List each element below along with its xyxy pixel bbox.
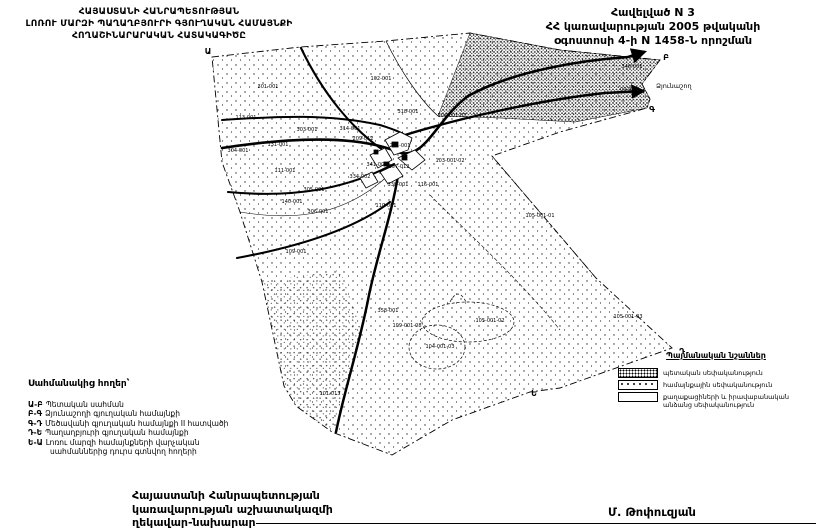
parcel-label: 301-001 [258, 84, 279, 90]
parcel-label: 346-001 [622, 64, 643, 70]
signature-name: Մ. Թոփուզյան [608, 505, 696, 519]
title-line: ՀԱՅԱՍՏԱՆԻ ՀԱՆՐԱՊԵՏՈՒԹՅԱՆ [4, 6, 314, 18]
appendix-line: օգոստոսի 4-ի N 1458-Ն որոշման [492, 34, 814, 48]
parcel-label: 105-001-03 [613, 314, 642, 320]
signatory-line: կառավարության աշխատակազմի [132, 503, 432, 517]
bottom-rule [256, 523, 816, 524]
boundary-point-letter: Գ [649, 105, 655, 114]
boundary-legend-item: Գ-ԴՄեծավանի գյուղական համայնքի II հատված… [28, 419, 288, 429]
parcel-label: 140-001 [282, 199, 303, 205]
parcel-label: 305-001 [304, 187, 325, 193]
boundary-legend-item: Ա-ԲՊետական սահման [28, 400, 288, 410]
appendix-line: ՀՀ կառավարության 2005 թվականի [492, 20, 814, 34]
ownership-legend-title: Պայմանական նշաններ [618, 352, 814, 360]
parcel-label: 131-001 [268, 142, 289, 148]
parcel-label: 105-001-01 [525, 213, 554, 219]
parcel-label: 303-001 [297, 127, 318, 133]
parcel-label: 116-001 [418, 182, 439, 188]
boundary-legend-title: Սահմանակից հողեր՝ [28, 380, 288, 390]
parcel-label: 334-002 [350, 174, 371, 180]
ownership-legend: Պայմանական նշաններ պետական սեփականությու… [618, 352, 814, 411]
boundary-legend-item: Դ-ԵՊաղաղբյուրի գյուղական համայնքի [28, 428, 288, 438]
parcel-label: 306-001 [308, 209, 329, 215]
private-ownership-swatch [618, 392, 658, 402]
boundary-point-letter: Ե [531, 389, 537, 398]
document-page: ԱԲԳԴԵ 301-001102-001113-001303-001131-00… [0, 0, 818, 531]
document-title: ՀԱՅԱՍՏԱՆԻ ՀԱՆՐԱՊԵՏՈՒԹՅԱՆ ԼՈՌՈՒ ՄԱՐԶԻ ՊԱՂ… [4, 6, 314, 42]
parcel-label: 304-001 [228, 148, 249, 154]
appendix-reference: Հավելված N 3 ՀՀ կառավարության 2005 թվակա… [492, 6, 814, 48]
parcel-label: 657-012 [389, 164, 410, 170]
community-ownership-swatch [618, 380, 658, 390]
boundary-legend: Սահմանակից հողեր՝ Ա-ԲՊետական սահման Բ-ԳՁ… [28, 380, 288, 457]
parcel-label: 358-001 [378, 308, 399, 314]
boundary-legend-item: Ե-ԱԼոռու մարզի համայնքների վարչական [28, 438, 288, 448]
parcel-label: 113-001 [236, 115, 257, 121]
parcel-label: 314-001 [340, 126, 361, 132]
title-line: ԼՈՌՈՒ ՄԱՐԶԻ ՊԱՂԱՂԲՅՈՒՐԻ ԳՅՈՒՂԱԿԱՆ ՀԱՄԱՅՆ… [4, 18, 314, 30]
boundary-point-letter: Բ [663, 53, 669, 62]
neighbor-village-label: Ձյունաշող [656, 82, 692, 90]
boundary-legend-item: Բ-ԳՁյունաշողի գյուղական համայնքի [28, 409, 288, 419]
parcel-label: 101-013 [320, 391, 341, 397]
parcel-label: 109-001 [286, 249, 307, 255]
parcel-label: 104-001-01 [437, 113, 466, 119]
boundary-legend-item-continuation: սահմաններից դուրս գտնվող հողերի [28, 447, 288, 457]
parcel-label: 105-001-02 [475, 318, 504, 324]
signatory-line: Հայաստանի Հանրապետության [132, 489, 432, 503]
parcel-label: 341-001 [367, 162, 388, 168]
parcel-label: 209-012 [353, 136, 374, 142]
parcel-label: 201-001 [390, 143, 411, 149]
ownership-legend-item: համայնքային սեփականություն [618, 380, 814, 390]
parcel-label: 109-001-08 [392, 323, 421, 329]
state-ownership-swatch [618, 368, 658, 378]
parcel-label: 102-001 [371, 76, 392, 82]
parcel-label: 338-001 [388, 182, 409, 188]
boundary-point-letter: Ա [205, 47, 212, 56]
parcel-label: 103-001-02 [435, 158, 464, 164]
parcel-label: 104-001-03 [425, 344, 454, 350]
parcel-label: 111-001 [275, 168, 296, 174]
ownership-legend-item: քաղաքացիների և իրավաբանական անձանց սեփակ… [618, 392, 814, 409]
parcel-label: 318-001 [398, 109, 419, 115]
appendix-line: Հավելված N 3 [492, 6, 814, 20]
ownership-legend-item: պետական սեփականություն [618, 368, 814, 378]
parcel-label: 09-001 [620, 87, 638, 93]
title-line: ՀՈՂԱՇԻՆԱՐԱՐԱԿԱՆ ՀԱՏԱԿԱԳԻԾԸ [4, 30, 314, 42]
parcel-label: 110-001 [376, 203, 397, 209]
